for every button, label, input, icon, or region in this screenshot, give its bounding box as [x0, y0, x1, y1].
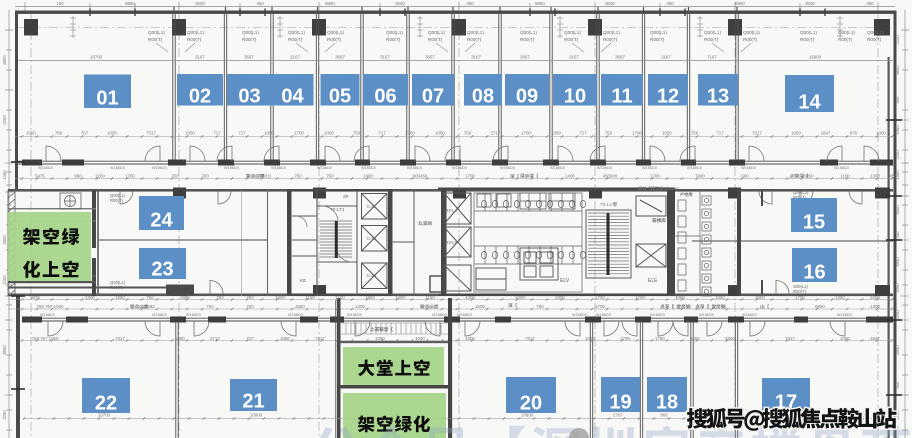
- svg-text:1050: 1050: [107, 131, 117, 136]
- svg-text:1050: 1050: [375, 336, 385, 341]
- svg-text:T2-L4: T2-L4: [446, 208, 458, 213]
- svg-text:3167: 3167: [195, 55, 205, 60]
- svg-text:1150: 1150: [305, 295, 315, 300]
- svg-text:1100: 1100: [840, 174, 850, 179]
- svg-text:W166D3: W166D3: [687, 166, 702, 170]
- svg-text:1700: 1700: [521, 131, 531, 136]
- svg-text:Q00(L1): Q00(L1): [327, 30, 344, 35]
- svg-text:3167: 3167: [290, 55, 300, 60]
- svg-text:Q00(L1): Q00(L1): [743, 30, 760, 35]
- svg-text:W166D3: W166D3: [317, 166, 332, 170]
- svg-text:1050: 1050: [26, 131, 36, 136]
- svg-text:15900: 15900: [809, 55, 822, 60]
- svg-text:Q00(L1): Q00(L1): [650, 30, 667, 35]
- svg-text:1600: 1600: [275, 295, 285, 300]
- svg-text:1885: 1885: [895, 125, 900, 135]
- svg-text:750: 750: [326, 174, 334, 179]
- svg-text:T2-L1: T2-L1: [366, 205, 376, 209]
- svg-text:1050: 1050: [585, 336, 595, 341]
- svg-text:KE: KE: [300, 278, 306, 283]
- svg-text:06: 06: [374, 86, 396, 108]
- svg-text:R00(T): R00(T): [242, 37, 257, 42]
- svg-text:3167: 3167: [471, 55, 481, 60]
- svg-text:W166D3: W166D3: [452, 166, 467, 170]
- svg-text:1200: 1200: [95, 174, 105, 179]
- svg-text:8850: 8850: [535, 1, 545, 6]
- svg-text:2400: 2400: [555, 295, 565, 300]
- svg-text:1050: 1050: [280, 336, 290, 341]
- svg-text:2250: 2250: [895, 310, 900, 320]
- svg-text:450: 450: [895, 231, 900, 239]
- svg-text:T3-L1: T3-L1: [600, 202, 612, 207]
- svg-text:4850: 4850: [895, 257, 900, 267]
- svg-text:750: 750: [206, 304, 214, 309]
- svg-text:1700: 1700: [650, 174, 660, 179]
- svg-text:R00(T): R00(T): [564, 37, 579, 42]
- svg-text:767: 767: [81, 131, 89, 136]
- svg-text:1450: 1450: [2, 275, 7, 285]
- svg-text:1050: 1050: [551, 131, 561, 136]
- svg-text:1050: 1050: [264, 131, 274, 136]
- svg-text:04: 04: [281, 86, 304, 108]
- svg-text:07: 07: [422, 86, 444, 108]
- svg-text:2250: 2250: [895, 150, 900, 160]
- svg-text:23: 23: [151, 259, 173, 281]
- svg-text:8850: 8850: [735, 1, 745, 6]
- svg-text:ELV: ELV: [560, 278, 570, 284]
- svg-text:W166D3: W166D3: [742, 313, 757, 317]
- svg-text:7317: 7317: [752, 131, 762, 136]
- svg-text:717: 717: [213, 131, 221, 136]
- svg-text:750 767 1050: 750 767 1050: [32, 336, 59, 341]
- svg-text:Q00(L1): Q00(L1): [520, 30, 537, 35]
- svg-text:1300: 1300: [870, 174, 880, 179]
- svg-text:SP: SP: [343, 194, 349, 199]
- svg-text:3667: 3667: [615, 55, 625, 60]
- svg-text:R00(T): R00(T): [793, 289, 807, 294]
- svg-text:Q00(L1): Q00(L1): [800, 30, 817, 35]
- svg-text:6850: 6850: [803, 174, 814, 179]
- svg-text:R00(T): R00(T): [288, 37, 303, 42]
- svg-text:W166D3: W166D3: [650, 313, 665, 317]
- svg-text:3667: 3667: [244, 55, 254, 60]
- svg-text:10700: 10700: [90, 55, 103, 60]
- svg-text:R00(T): R00(T): [867, 37, 882, 42]
- svg-text:W166D3: W166D3: [347, 313, 362, 317]
- svg-text:4850: 4850: [895, 205, 900, 215]
- svg-text:02: 02: [189, 86, 211, 108]
- svg-text:750: 750: [464, 131, 472, 136]
- svg-text:R00(T): R00(T): [603, 37, 618, 42]
- svg-text:ELE: ELE: [648, 278, 658, 284]
- svg-text:1050: 1050: [175, 336, 185, 341]
- svg-text:1300: 1300: [85, 295, 95, 300]
- svg-text:1050: 1050: [791, 131, 801, 136]
- svg-text:(7881): (7881): [258, 174, 272, 179]
- svg-text:W166D3: W166D3: [110, 166, 125, 170]
- svg-text:R00(T): R00(T): [838, 37, 853, 42]
- svg-text:Q00(L1): Q00(L1): [603, 30, 620, 35]
- svg-text:1350: 1350: [835, 295, 845, 300]
- svg-text:1050: 1050: [185, 131, 195, 136]
- svg-text:20: 20: [520, 393, 542, 415]
- svg-text:22: 22: [95, 393, 117, 415]
- svg-text:717: 717: [378, 131, 386, 136]
- svg-text:150: 150: [56, 1, 64, 6]
- svg-text:1700: 1700: [465, 174, 475, 179]
- svg-text:3167: 3167: [661, 55, 671, 60]
- svg-text:1050: 1050: [715, 295, 725, 300]
- svg-text:717: 717: [238, 131, 246, 136]
- svg-text:1850: 1850: [365, 295, 375, 300]
- svg-text:4850: 4850: [2, 235, 7, 245]
- svg-text:21: 21: [242, 391, 264, 413]
- svg-text:T2-LT1: T2-LT1: [330, 207, 345, 212]
- svg-text:8850: 8850: [895, 345, 900, 355]
- svg-text:450: 450: [895, 96, 900, 104]
- svg-text:12: 12: [657, 86, 679, 108]
- svg-text:R00(T): R00(T): [704, 37, 719, 42]
- svg-text:7400: 7400: [695, 174, 705, 179]
- svg-text:450: 450: [866, 1, 874, 6]
- svg-text:13: 13: [707, 86, 729, 108]
- svg-text:W166D3: W166D3: [271, 166, 286, 170]
- svg-text:3167: 3167: [569, 55, 579, 60]
- svg-text:R00(T): R00(T): [148, 37, 163, 42]
- svg-text:3000: 3000: [805, 1, 815, 6]
- svg-text:7317: 7317: [785, 336, 795, 341]
- svg-text:1050: 1050: [435, 131, 445, 136]
- svg-text:8850: 8850: [325, 1, 335, 6]
- svg-text:W166D3: W166D3: [152, 166, 167, 170]
- svg-text:2250: 2250: [2, 115, 7, 125]
- svg-text:3167: 3167: [380, 55, 390, 60]
- svg-text:R00(T): R00(T): [110, 198, 124, 203]
- svg-text:7167: 7167: [707, 55, 717, 60]
- svg-text:W166D3: W166D3: [550, 166, 565, 170]
- svg-text:875: 875: [850, 131, 858, 136]
- svg-text:05: 05: [329, 86, 351, 108]
- svg-text:1700: 1700: [294, 131, 304, 136]
- svg-text:W166D3: W166D3: [361, 166, 376, 170]
- svg-text:2880: 2880: [295, 304, 305, 309]
- svg-text:16: 16: [803, 262, 825, 284]
- svg-text:R00(T): R00(T): [110, 285, 124, 290]
- svg-text:1400: 1400: [363, 174, 373, 179]
- svg-text:1700: 1700: [405, 131, 415, 136]
- svg-text:750: 750: [353, 131, 361, 136]
- svg-text:15882: 15882: [142, 304, 155, 309]
- svg-text:W166D3: W166D3: [288, 313, 303, 317]
- svg-text:8850: 8850: [895, 65, 900, 75]
- svg-text:W166D3: W166D3: [642, 166, 657, 170]
- svg-text:R00(T): R00(T): [800, 37, 815, 42]
- svg-text:1000: 1000: [870, 295, 880, 300]
- svg-text:T2-L3: T2-L3: [366, 237, 376, 241]
- svg-text:W166D3: W166D3: [152, 313, 167, 317]
- svg-text:W166D3: W166D3: [572, 313, 587, 317]
- svg-text:1400: 1400: [565, 174, 575, 179]
- svg-text:W166D3: W166D3: [457, 313, 472, 317]
- svg-text:1450: 1450: [895, 283, 900, 293]
- svg-text:1100: 1100: [335, 295, 345, 300]
- svg-text:450: 450: [256, 1, 264, 6]
- svg-text:717: 717: [716, 131, 724, 136]
- svg-text:990: 990: [74, 174, 82, 179]
- svg-text:W166D3: W166D3: [699, 313, 714, 317]
- svg-text:7317: 7317: [525, 336, 535, 341]
- svg-text:450: 450: [466, 1, 474, 6]
- svg-text:1700: 1700: [795, 295, 805, 300]
- svg-text:1050: 1050: [324, 131, 334, 136]
- svg-text:Q00(L1): Q00(L1): [242, 30, 259, 35]
- svg-text:Q00(L1): Q00(L1): [467, 30, 484, 35]
- svg-text:W166D3: W166D3: [38, 166, 53, 170]
- svg-text:W166D3: W166D3: [407, 166, 422, 170]
- svg-text:1030: 1030: [415, 336, 425, 341]
- svg-text:Q00(L1): Q00(L1): [564, 30, 581, 35]
- svg-text:11: 11: [611, 86, 632, 108]
- svg-text:1750: 1750: [655, 336, 665, 341]
- svg-text:2717: 2717: [210, 336, 220, 341]
- svg-text:750 767 1050: 750 767 1050: [37, 304, 64, 309]
- svg-text:R00(T): R00(T): [520, 37, 535, 42]
- svg-text:8850: 8850: [2, 55, 7, 65]
- svg-text:1847: 1847: [870, 336, 880, 341]
- svg-text:750: 750: [55, 131, 63, 136]
- svg-text:1600: 1600: [395, 295, 405, 300]
- svg-text:7317: 7317: [115, 336, 125, 341]
- svg-text:8850: 8850: [125, 1, 135, 6]
- svg-text:R00(T): R00(T): [428, 37, 443, 42]
- svg-text:1750: 1750: [125, 174, 135, 179]
- svg-text:450: 450: [666, 1, 674, 6]
- svg-text:R00(T): R00(T): [386, 37, 401, 42]
- svg-text:450: 450: [895, 381, 900, 389]
- svg-text:08: 08: [472, 86, 494, 108]
- svg-text:24: 24: [150, 210, 173, 232]
- svg-text:6850: 6850: [815, 304, 825, 309]
- svg-text:9875: 9875: [30, 295, 40, 300]
- svg-text:1050: 1050: [840, 336, 850, 341]
- svg-text:750: 750: [146, 295, 154, 300]
- svg-text:2717: 2717: [491, 131, 501, 136]
- svg-text:Q00(L1): Q00(L1): [428, 30, 445, 35]
- svg-text:3000: 3000: [395, 1, 405, 6]
- svg-text:Q00(L1): Q00(L1): [187, 30, 204, 35]
- svg-text:1300: 1300: [870, 304, 880, 309]
- svg-text:1700: 1700: [620, 336, 630, 341]
- svg-text:750: 750: [691, 131, 699, 136]
- svg-text:450900: 450900: [603, 174, 618, 179]
- svg-text:7317: 7317: [146, 131, 156, 136]
- svg-text:Q00(L1): Q00(L1): [867, 30, 884, 35]
- svg-text:14: 14: [798, 92, 821, 114]
- svg-text:W166D3: W166D3: [432, 313, 447, 317]
- svg-text:R00(T): R00(T): [743, 37, 758, 42]
- svg-text:750: 750: [605, 131, 613, 136]
- svg-text:1400: 1400: [355, 304, 365, 309]
- svg-text:1450: 1450: [2, 170, 7, 180]
- svg-text:1000: 1000: [515, 295, 525, 300]
- svg-text:T2-L5: T2-L5: [366, 274, 376, 278]
- svg-text:1050: 1050: [876, 131, 886, 136]
- svg-text:W166D3: W166D3: [597, 166, 612, 170]
- svg-text:750: 750: [294, 174, 302, 179]
- svg-text:Q00(L1): Q00(L1): [288, 30, 305, 35]
- svg-text:5475: 5475: [35, 174, 45, 179]
- svg-text:1847: 1847: [821, 131, 831, 136]
- svg-text:09: 09: [516, 86, 538, 108]
- svg-text:3667: 3667: [425, 55, 435, 60]
- svg-text:W166D3: W166D3: [500, 166, 515, 170]
- svg-text:10: 10: [564, 86, 586, 108]
- svg-text:4300: 4300: [465, 336, 475, 341]
- svg-text:Q00(L1): Q00(L1): [148, 30, 165, 35]
- svg-text:W166D3: W166D3: [186, 313, 201, 317]
- svg-text:W166D3: W166D3: [834, 166, 849, 170]
- svg-text:18: 18: [656, 392, 678, 414]
- svg-text:3667: 3667: [335, 55, 345, 60]
- svg-text:1600: 1600: [475, 304, 485, 309]
- svg-text:W166D3: W166D3: [837, 313, 852, 317]
- svg-text:1700: 1700: [632, 131, 642, 136]
- svg-text:1700: 1700: [635, 295, 645, 300]
- svg-text:Q00(L1): Q00(L1): [386, 30, 403, 35]
- svg-text:R00(T): R00(T): [650, 37, 665, 42]
- svg-text:4050: 4050: [675, 295, 685, 300]
- svg-text:W166D3: W166D3: [596, 313, 611, 317]
- svg-text:W166D3: W166D3: [224, 166, 239, 170]
- svg-text:1450: 1450: [895, 170, 900, 180]
- svg-text:7317: 7317: [315, 336, 325, 341]
- svg-text:13.14m²: 13.14m²: [663, 186, 679, 191]
- svg-text:3667: 3667: [520, 55, 530, 60]
- svg-text:3000: 3000: [195, 1, 205, 6]
- svg-text:Q00(L1): Q00(L1): [704, 30, 721, 35]
- svg-text:4050: 4050: [755, 295, 765, 300]
- svg-text:750: 750: [536, 304, 544, 309]
- svg-text:W166D3: W166D3: [40, 313, 55, 317]
- svg-text:1150: 1150: [425, 295, 435, 300]
- svg-text:2250: 2250: [2, 410, 7, 420]
- svg-text:03: 03: [238, 86, 260, 108]
- svg-text:19: 19: [609, 392, 631, 414]
- svg-text:01: 01: [96, 88, 118, 110]
- svg-text:T2-L5: T2-L5: [446, 240, 458, 245]
- svg-text:R00(T): R00(T): [187, 37, 202, 42]
- svg-text:W166D3: W166D3: [741, 166, 756, 170]
- svg-text:4300: 4300: [725, 336, 735, 341]
- svg-text:717: 717: [579, 131, 587, 136]
- svg-text:1050: 1050: [662, 131, 672, 136]
- svg-text:1700: 1700: [595, 304, 605, 309]
- svg-text:R00(T): R00(T): [467, 37, 482, 42]
- svg-text:1550: 1550: [115, 295, 125, 300]
- svg-text:4300: 4300: [465, 295, 475, 300]
- svg-text:2250: 2250: [895, 35, 900, 45]
- svg-text:15: 15: [803, 212, 825, 234]
- svg-text:10000: 10000: [250, 412, 263, 417]
- svg-text:3000: 3000: [605, 1, 615, 6]
- svg-text:1050: 1050: [690, 336, 700, 341]
- svg-text:Q00(L1): Q00(L1): [838, 30, 855, 35]
- svg-text:900450: 900450: [413, 174, 428, 179]
- svg-text:8850: 8850: [2, 345, 7, 355]
- svg-text:R00(T): R00(T): [327, 37, 342, 42]
- svg-text:2880: 2880: [180, 295, 190, 300]
- svg-text:1700: 1700: [595, 295, 605, 300]
